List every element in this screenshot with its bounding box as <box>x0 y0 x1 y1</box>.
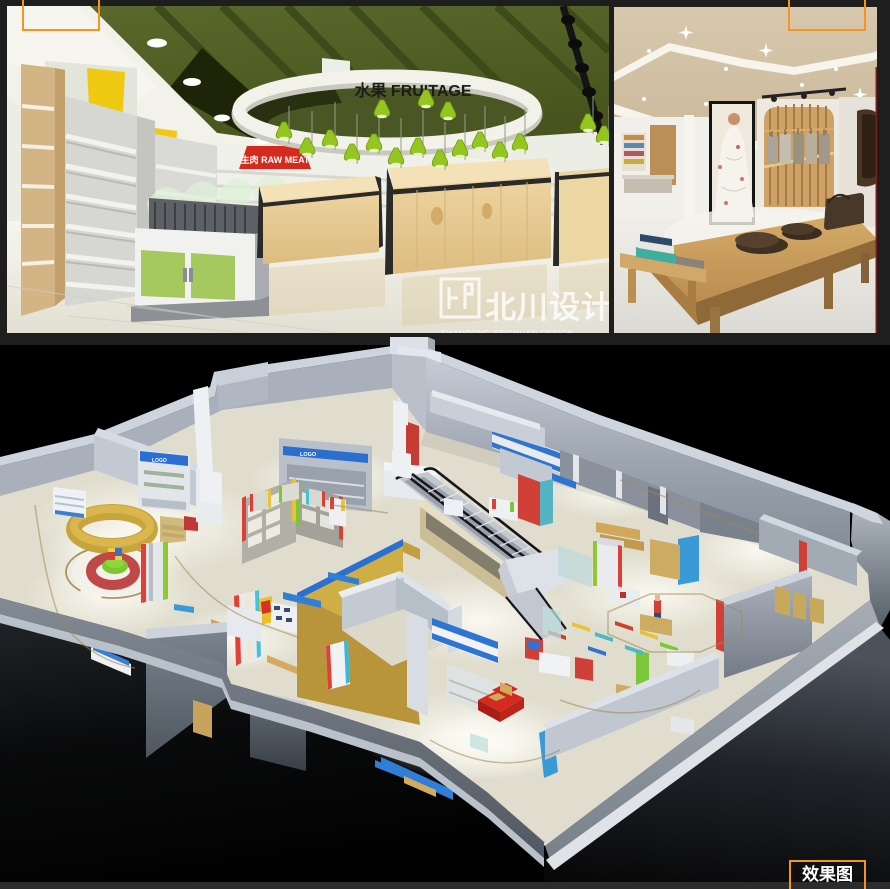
svg-text:水果 FRUITAGE: 水果 FRUITAGE <box>354 81 471 100</box>
svg-text:SHANDONG BEICHUAN DESIGN: SHANDONG BEICHUAN DESIGN <box>441 329 573 333</box>
svg-text:LOGO: LOGO <box>152 458 167 464</box>
svg-text:LOGO: LOGO <box>300 452 317 458</box>
svg-text:北川设计: 北川设计 <box>485 290 609 325</box>
svg-text:生肉 RAW MEAT: 生肉 RAW MEAT <box>241 154 310 165</box>
